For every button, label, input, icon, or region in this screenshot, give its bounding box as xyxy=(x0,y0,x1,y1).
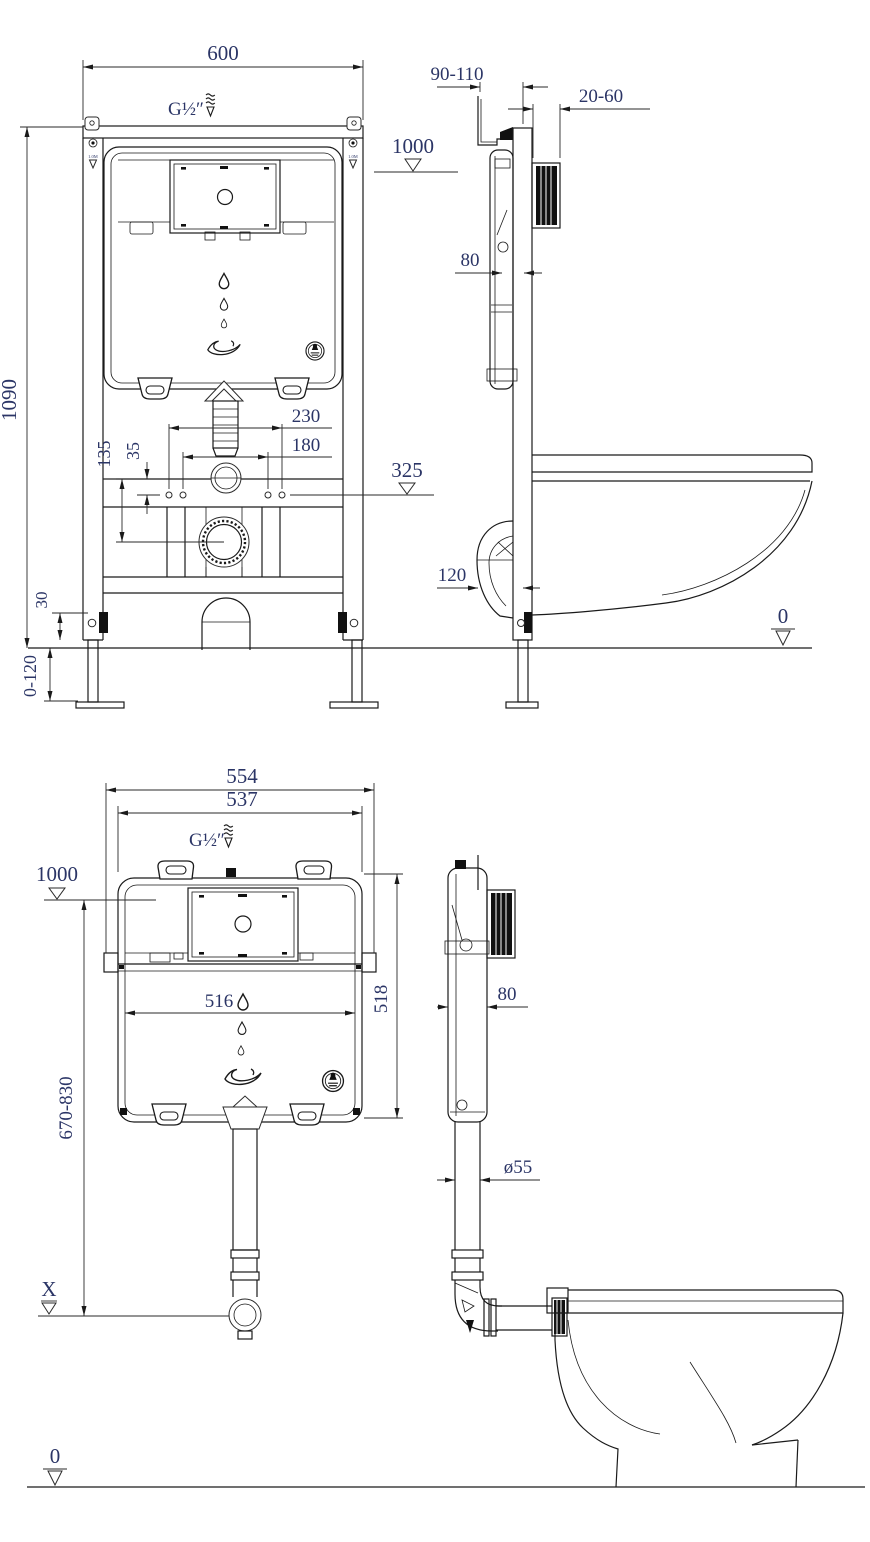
frame-rail-side xyxy=(506,128,538,708)
level-marker-x: X xyxy=(38,1277,229,1316)
dim-554-label: 554 xyxy=(226,764,258,788)
bottom-dimensions: 554 537 G½″ 1000 516 518 xyxy=(27,764,865,1487)
level-marker-0-top: 0 xyxy=(771,604,795,645)
push-button-hole xyxy=(235,916,251,932)
access-panel xyxy=(170,160,280,233)
dim-518-label: 518 xyxy=(371,985,392,1014)
flush-pipe-side xyxy=(452,1122,567,1336)
dim-120-label: 120 xyxy=(438,565,467,586)
dim-80-bottom: 80 xyxy=(437,984,528,1007)
dim-80-top: 80 xyxy=(455,250,542,273)
flush-pipe xyxy=(213,401,238,456)
dim-80-bottom-label: 80 xyxy=(498,984,517,1005)
waste-outlet xyxy=(199,517,249,577)
dim-135-label: 135 xyxy=(94,441,114,468)
dim-120: 120 xyxy=(437,565,540,588)
supply-size-label: G½″ xyxy=(189,830,225,851)
splash-icon xyxy=(225,1069,261,1084)
floor-toilet-profile xyxy=(547,1288,843,1487)
supply-label: G½″ xyxy=(168,94,215,120)
cistern-profile-side-bottom xyxy=(445,855,489,1122)
flush-pipe-bottom xyxy=(223,1096,267,1339)
dim-30-label: 30 xyxy=(32,592,51,609)
flush-plate-sleeve-bottom xyxy=(487,890,515,958)
dim-537: 537 xyxy=(118,787,362,872)
mounting-ear xyxy=(158,861,194,879)
level-x-label: X xyxy=(41,1277,56,1301)
dim-d55-label: ø55 xyxy=(504,1157,533,1178)
top-side-view xyxy=(477,96,812,708)
level-marker-1000: 1000 xyxy=(374,134,458,172)
dim-518: 518 xyxy=(364,874,403,1118)
tank-clip xyxy=(152,1104,186,1125)
top-front-view: 1.0M 1.0M xyxy=(76,117,378,708)
flush-plate-sleeve xyxy=(532,163,560,228)
adjustable-feet xyxy=(76,640,378,708)
dim-0-120-label: 0-120 xyxy=(20,655,40,697)
dim-80-top-label: 80 xyxy=(461,250,480,271)
supply-steam-icon xyxy=(224,825,233,847)
drawing-sheet: 1.0M 1.0M xyxy=(0,0,870,1542)
technical-drawing: 1.0M 1.0M xyxy=(0,0,870,1542)
waste-bend-side xyxy=(477,521,513,618)
supply-size-label: G½″ xyxy=(168,99,204,120)
dim-180: 180 xyxy=(183,435,332,489)
rail-marker-label: 1.0M xyxy=(88,154,98,159)
dim-180-label: 180 xyxy=(292,435,321,456)
drain-template xyxy=(202,598,250,650)
splash-icon xyxy=(208,341,240,355)
droplet-icon xyxy=(238,994,248,1055)
dim-516-label: 516 xyxy=(205,991,234,1012)
dim-90-110-label: 90-110 xyxy=(430,64,483,85)
dim-537-label: 537 xyxy=(226,787,258,811)
dim-600-label: 600 xyxy=(207,41,239,65)
dim-20-60: 20-60 xyxy=(508,86,650,158)
dim-1090: 1090 xyxy=(0,127,83,648)
rail-1m-marker: 1.0M 1.0M xyxy=(88,154,358,168)
mounting-ear xyxy=(296,861,332,879)
dim-35: 35 xyxy=(123,442,160,514)
level-1000-bottom-label: 1000 xyxy=(36,862,78,886)
tank-clip xyxy=(290,1104,324,1125)
level-marker-1000-bottom: 1000 xyxy=(36,862,156,900)
eco-badge-icon xyxy=(306,342,324,360)
dim-35-label: 35 xyxy=(123,442,143,460)
access-panel-bottom xyxy=(188,888,298,961)
dim-600: 600 xyxy=(83,41,363,120)
level-0-bottom-label: 0 xyxy=(50,1444,61,1468)
supply-steam-icon xyxy=(206,94,215,116)
wall-hung-toilet-profile xyxy=(532,455,812,615)
level-marker-0-bottom: 0 xyxy=(43,1444,67,1485)
wall-bracket xyxy=(478,96,513,145)
top-dimensions: 600 G½″ 1000 90-110 20-60 xyxy=(0,41,812,701)
level-marker-325: 325 xyxy=(290,458,434,495)
floor-bracket xyxy=(88,612,358,633)
inlet-elbow xyxy=(211,463,241,493)
dim-d55: ø55 xyxy=(437,1157,540,1180)
dim-230-label: 230 xyxy=(292,406,321,427)
flush-valve-outlet xyxy=(205,381,243,401)
tank-clip xyxy=(275,378,309,399)
level-0-top-label: 0 xyxy=(778,604,789,628)
dim-1090-label: 1090 xyxy=(0,379,21,421)
inlet-knob xyxy=(226,868,236,877)
tank-clip xyxy=(138,378,172,399)
dim-670-830: 670-830 xyxy=(56,900,84,1316)
dim-0-120: 0-120 xyxy=(20,648,78,701)
dim-30: 30 xyxy=(32,592,88,641)
bottom-front-view xyxy=(104,861,376,1339)
level-325-label: 325 xyxy=(391,458,423,482)
rail-hanger-icon xyxy=(85,117,361,147)
droplet-icon xyxy=(219,273,229,327)
dim-670-830-label: 670-830 xyxy=(56,1076,77,1139)
supply-label-bottom: G½″ xyxy=(189,825,233,851)
push-button-hole xyxy=(218,190,233,205)
cistern-profile-side xyxy=(487,150,517,389)
rail-marker-label: 1.0M xyxy=(348,154,358,159)
dim-90-110: 90-110 xyxy=(430,64,548,124)
eco-badge-icon xyxy=(323,1071,344,1092)
level-1000-label: 1000 xyxy=(392,134,434,158)
dim-20-60-label: 20-60 xyxy=(579,86,623,107)
